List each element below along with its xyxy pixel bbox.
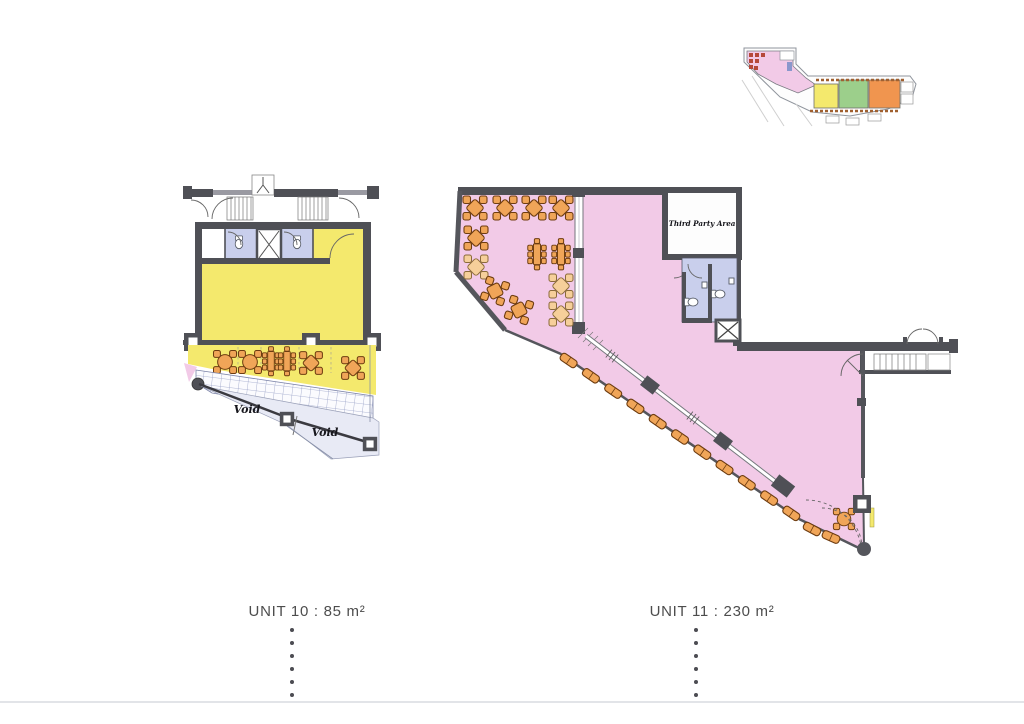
key-plan-room xyxy=(780,51,794,60)
door-arc xyxy=(339,198,359,218)
unit10-leader-dots xyxy=(290,628,294,697)
stairs-icon xyxy=(874,354,950,370)
unit10-dining-room xyxy=(202,260,363,344)
key-plan-thumbnail xyxy=(738,42,926,132)
door-arc xyxy=(191,200,208,217)
unit11-floor-plan: Third Party Area xyxy=(450,178,965,573)
unit11-label: UNIT 11 : 230 m² xyxy=(587,603,837,620)
third-party-area-label: Third Party Area xyxy=(669,219,736,228)
scanned-floor-plan-sheet: Void Void Third Party xyxy=(0,0,1024,724)
dining-table-icon xyxy=(342,357,365,380)
page-bottom-edge xyxy=(0,701,1024,703)
void-label: Void xyxy=(234,403,261,416)
void-label: Void xyxy=(312,426,339,439)
sink-icon xyxy=(729,278,734,284)
unit11-floor xyxy=(455,190,864,551)
unit10-front-wall xyxy=(183,340,381,345)
stairs-icon xyxy=(227,197,328,220)
column-icon xyxy=(280,412,294,426)
dining-table-icon xyxy=(300,352,323,375)
unit10-floor-plan: Void Void xyxy=(183,172,398,464)
washroom-area xyxy=(225,229,313,260)
unit10-dining-room xyxy=(313,229,363,260)
sink-icon xyxy=(702,282,707,288)
key-plan-green-room xyxy=(839,80,868,108)
washroom-area xyxy=(682,258,737,323)
key-plan-orange-room xyxy=(869,80,900,108)
column-icon xyxy=(363,437,377,451)
unit10-label: UNIT 10 : 85 m² xyxy=(182,603,432,620)
unit10-inner-wall xyxy=(202,258,330,264)
key-plan-stair xyxy=(787,62,792,71)
third-party-area-room: Third Party Area xyxy=(662,187,742,260)
unit11-leader-dots xyxy=(694,628,698,697)
shaft-icon xyxy=(716,320,740,341)
key-plan-yellow-room xyxy=(814,84,838,108)
column-icon xyxy=(853,495,871,513)
toilet-icon xyxy=(711,290,724,298)
toilet-icon xyxy=(684,298,697,306)
column-icon xyxy=(857,542,871,556)
